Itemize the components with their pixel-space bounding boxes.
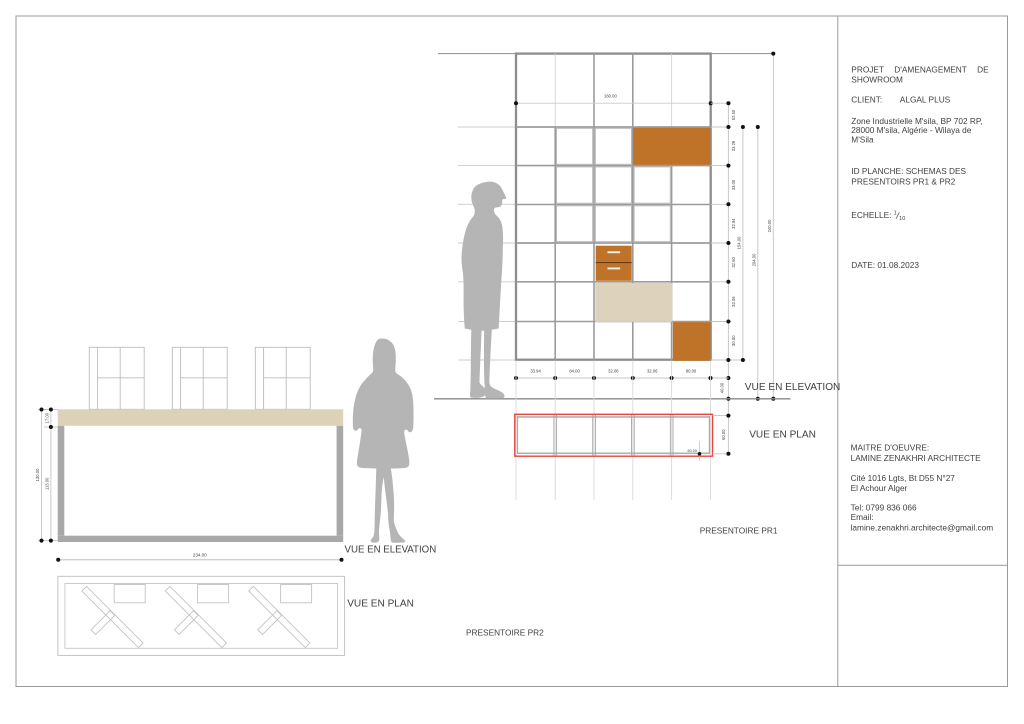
- svg-text:113.00: 113.00: [44, 477, 49, 490]
- svg-text:33.00: 33.00: [731, 179, 736, 190]
- svg-text:SHOWROOM: SHOWROOM: [851, 75, 903, 85]
- svg-text:80.00: 80.00: [686, 369, 697, 374]
- svg-text:32.06: 32.06: [608, 369, 619, 374]
- svg-text:PRESENTOIRE PR2: PRESENTOIRE PR2: [466, 627, 544, 637]
- svg-text:33.29: 33.29: [731, 140, 736, 151]
- svg-text:40.00: 40.00: [720, 382, 725, 393]
- svg-text:30.00: 30.00: [731, 335, 736, 346]
- svg-text:ECHELLE:: ECHELLE:: [851, 210, 891, 220]
- svg-text:ID PLANCHE: SCHEMAS DES: ID PLANCHE: SCHEMAS DES: [851, 166, 966, 176]
- svg-text:32.94: 32.94: [731, 218, 736, 229]
- svg-text:130.00: 130.00: [35, 468, 40, 481]
- svg-text:160.00: 160.00: [604, 94, 617, 99]
- svg-text:154.00: 154.00: [737, 236, 742, 249]
- svg-text:84.00: 84.00: [569, 369, 580, 374]
- svg-text:1: 1: [894, 211, 897, 217]
- svg-text:D'AMENAGEMENT: D'AMENAGEMENT: [894, 64, 967, 74]
- svg-text:33.94: 33.94: [530, 369, 541, 374]
- svg-text:PRESENTOIRE PR1: PRESENTOIRE PR1: [700, 525, 778, 535]
- svg-text:52.50: 52.50: [731, 109, 736, 120]
- svg-text:lamine.zenakhri.architecte@gma: lamine.zenakhri.architecte@gmail.com: [851, 522, 994, 532]
- svg-text:32.06: 32.06: [731, 296, 736, 307]
- svg-text:ALGAL PLUS: ALGAL PLUS: [900, 94, 951, 104]
- svg-text:PROJET: PROJET: [851, 64, 884, 74]
- svg-text:60.00: 60.00: [687, 449, 697, 453]
- svg-text:PRESENTOIRS PR1 & PR2: PRESENTOIRS PR1 & PR2: [851, 176, 955, 186]
- svg-text:LAMINE ZENAKHRI ARCHITECTE: LAMINE ZENAKHRI ARCHITECTE: [851, 453, 981, 463]
- svg-text:Tel: 0799 836 066: Tel: 0799 836 066: [851, 503, 917, 513]
- svg-text:El Achour Alger: El Achour Alger: [851, 483, 908, 493]
- svg-text:32.06: 32.06: [647, 369, 658, 374]
- svg-text:32.50: 32.50: [731, 256, 736, 267]
- svg-text:10: 10: [899, 216, 905, 222]
- svg-text:17.00: 17.00: [44, 412, 49, 423]
- svg-text:VUE EN ELEVATION: VUE EN ELEVATION: [745, 382, 841, 393]
- svg-text:CLIENT:: CLIENT:: [851, 94, 882, 104]
- svg-text:DATE: 01.08.2023: DATE: 01.08.2023: [851, 260, 919, 270]
- svg-text:VUE EN PLAN: VUE EN PLAN: [749, 430, 816, 441]
- svg-text:VUE EN ELEVATION: VUE EN ELEVATION: [345, 544, 437, 555]
- svg-text:Cité 1016 Lgts, Bt D55 N°27: Cité 1016 Lgts, Bt D55 N°27: [851, 473, 956, 483]
- svg-text:M'Sila: M'Sila: [851, 134, 874, 144]
- svg-text:DE: DE: [977, 64, 989, 74]
- svg-text:MAITRE D'OEUVRE:: MAITRE D'OEUVRE:: [851, 442, 930, 452]
- svg-text:60.00: 60.00: [721, 429, 726, 440]
- svg-text:Email:: Email:: [851, 512, 874, 522]
- svg-text:240.00: 240.00: [767, 219, 772, 232]
- svg-text:VUE EN PLAN: VUE EN PLAN: [347, 598, 414, 609]
- svg-text:234.00: 234.00: [193, 553, 207, 558]
- svg-text:204.00: 204.00: [751, 253, 756, 266]
